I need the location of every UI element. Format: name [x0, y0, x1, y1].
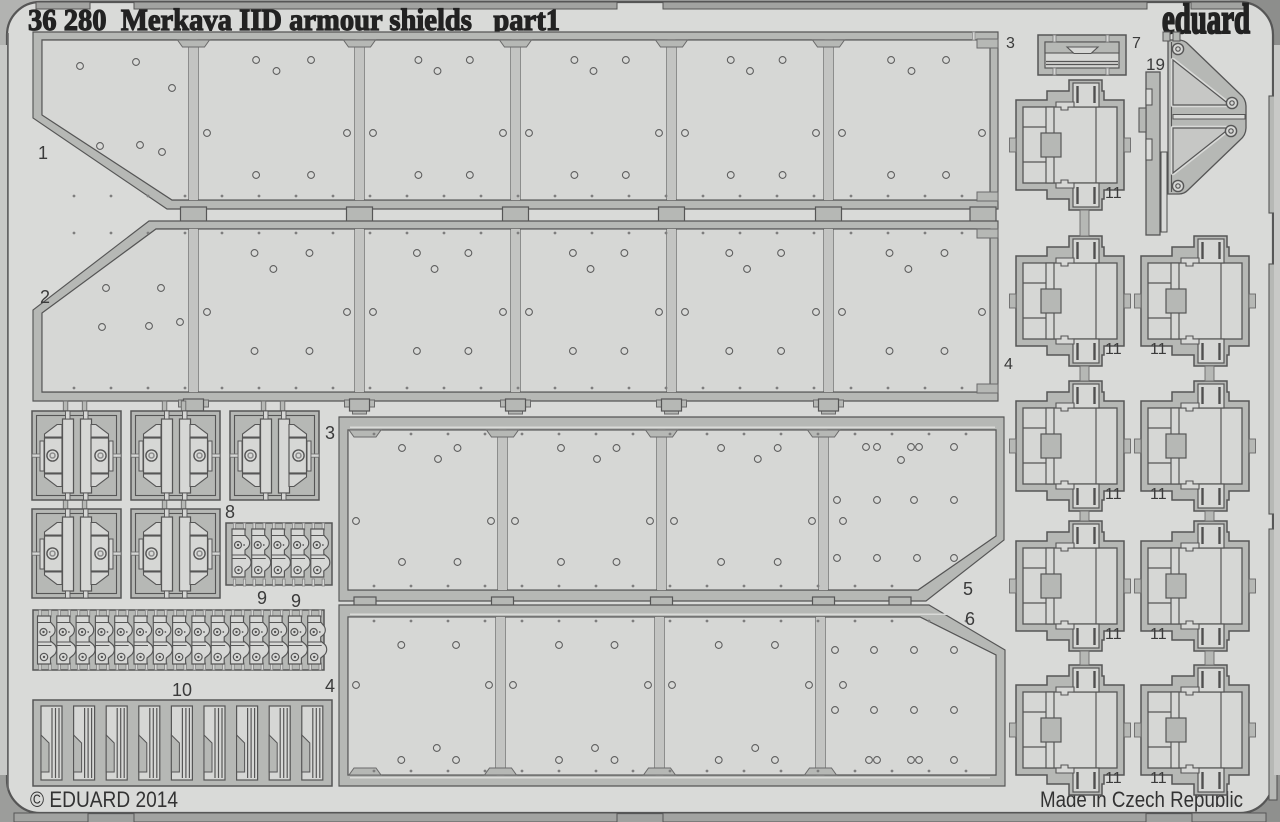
svg-text:11: 11 — [1105, 770, 1122, 787]
svg-text:11: 11 — [1105, 185, 1122, 202]
svg-text:11: 11 — [1105, 626, 1122, 643]
svg-text:6: 6 — [965, 609, 975, 629]
svg-text:1: 1 — [38, 143, 48, 163]
svg-text:4: 4 — [325, 676, 335, 696]
svg-text:11: 11 — [1105, 486, 1122, 503]
svg-text:11: 11 — [1105, 341, 1122, 358]
svg-text:11: 11 — [1150, 341, 1167, 358]
svg-text:11: 11 — [1150, 626, 1167, 643]
svg-text:8: 8 — [225, 502, 235, 522]
svg-text:9: 9 — [291, 591, 301, 611]
svg-text:10: 10 — [172, 680, 192, 700]
svg-text:9: 9 — [257, 588, 267, 608]
svg-text:11: 11 — [1150, 486, 1167, 503]
svg-text:4: 4 — [1004, 356, 1013, 373]
svg-text:5: 5 — [963, 579, 973, 599]
svg-text:7: 7 — [1132, 35, 1141, 52]
svg-text:11: 11 — [1150, 770, 1167, 787]
svg-text:3: 3 — [1006, 35, 1015, 52]
svg-text:2: 2 — [40, 287, 50, 307]
svg-text:3: 3 — [325, 423, 335, 443]
svg-text:© EDUARD 2014: © EDUARD 2014 — [30, 787, 178, 812]
svg-text:19: 19 — [1146, 55, 1165, 74]
